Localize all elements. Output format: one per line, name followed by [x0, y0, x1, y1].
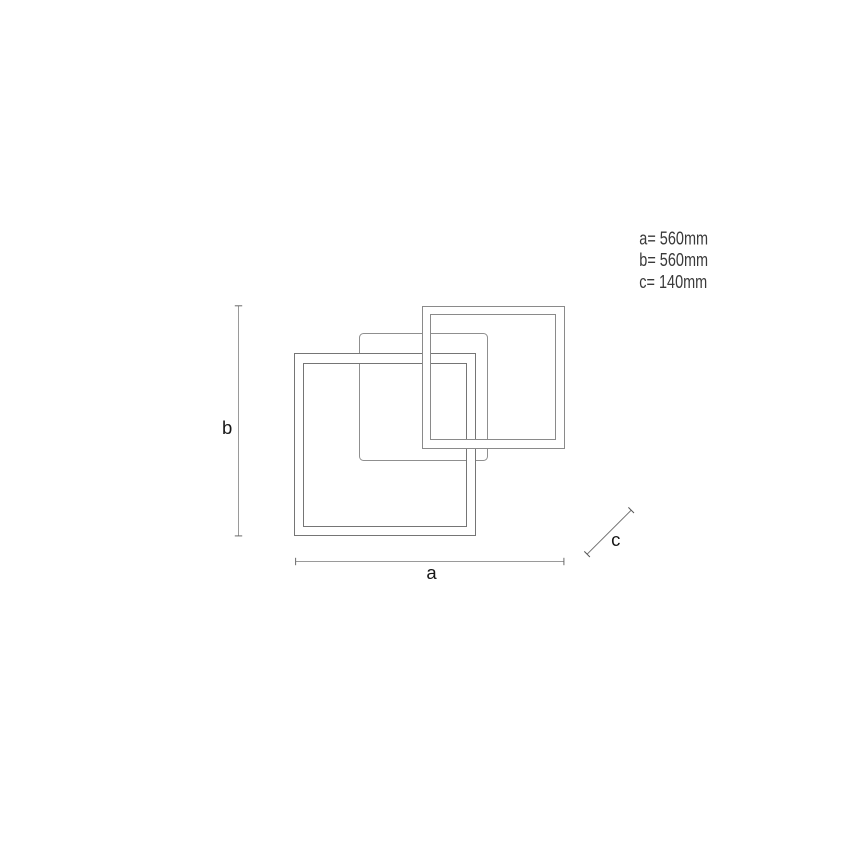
svg-text:a= 560mm: a= 560mm: [639, 227, 708, 248]
svg-text:a: a: [426, 562, 437, 583]
svg-text:b: b: [222, 417, 232, 438]
svg-text:c: c: [611, 529, 620, 550]
svg-text:c= 140mm: c= 140mm: [639, 271, 707, 292]
svg-text:b= 560mm: b= 560mm: [639, 249, 708, 270]
